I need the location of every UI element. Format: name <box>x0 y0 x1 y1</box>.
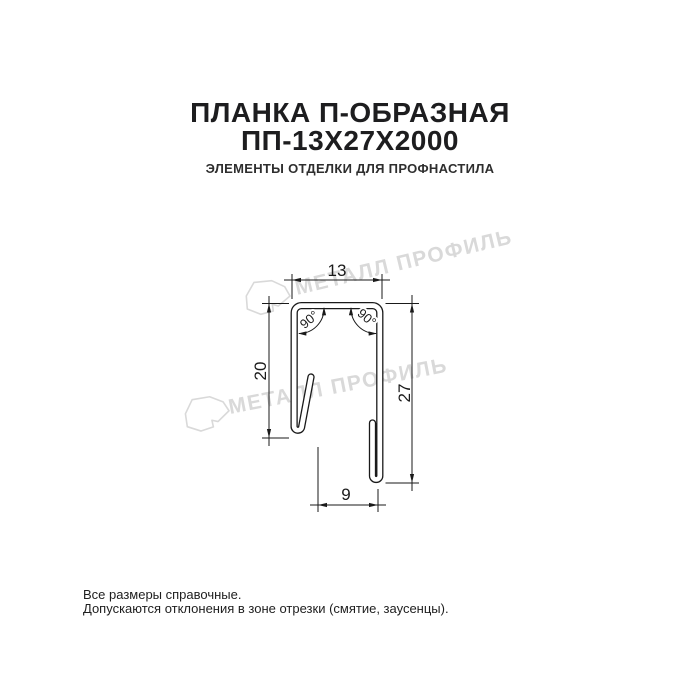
dimension-arrow <box>267 304 271 313</box>
dim-label-top-width: 13 <box>328 261 347 280</box>
watermark-text: МЕТАЛЛ ПРОФИЛЬ <box>293 225 515 299</box>
dimension-arrow <box>410 474 414 483</box>
dimension-arrow <box>318 503 327 507</box>
product-drawing-page: ПЛАНКА П-ОБРАЗНАЯ ПП-13Х27Х2000 ЭЛЕМЕНТЫ… <box>0 0 700 700</box>
angle-annotation-left: 90° <box>297 307 326 336</box>
dimension-right-height: 27 <box>386 295 420 491</box>
footer-notes: Все размеры справочные. Допускаются откл… <box>83 588 449 616</box>
footer-note-line1: Все размеры справочные. <box>83 588 449 602</box>
dimension-left-height: 20 <box>251 296 289 446</box>
angle-label-left: 90° <box>297 307 322 331</box>
dim-label-left-height: 20 <box>251 362 270 381</box>
dimension-arrow <box>267 429 271 438</box>
dimension-arrow <box>369 503 378 507</box>
dim-label-bottom-width: 9 <box>341 485 350 504</box>
watermark-top-right: МЕТАЛЛ ПРОФИЛЬ <box>246 225 514 314</box>
angle-arrow <box>369 331 378 335</box>
dimension-arrow <box>410 304 414 313</box>
angle-arrow <box>298 331 307 335</box>
footer-note-line2: Допускаются отклонения в зоне отрезки (с… <box>83 602 449 616</box>
dim-label-right-height: 27 <box>395 384 414 403</box>
metall-profil-logo-icon <box>184 395 230 432</box>
angle-annotation-right: 90° <box>349 305 379 335</box>
